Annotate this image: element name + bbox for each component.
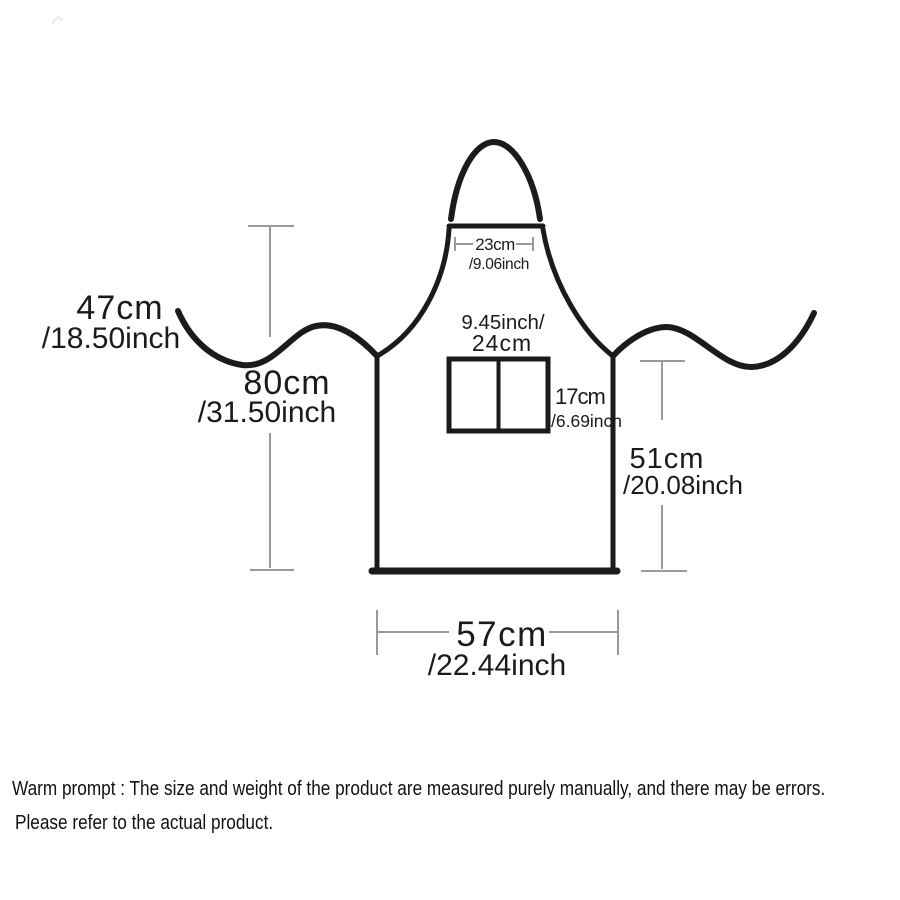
total-height-inch-label: /31.50inch <box>198 396 336 429</box>
pocket-height-inch-label: /6.69inch <box>551 411 622 431</box>
waist-strap-right <box>613 313 814 367</box>
neck-strap-arch <box>451 142 540 219</box>
warm-prompt-line2: Please refer to the actual product. <box>15 812 273 835</box>
neck-width-inch-label: /9.06inch <box>469 256 529 273</box>
apron-diagram-svg: 47cm /18.50inch 80cm /31.50inch 23cm /9.… <box>0 0 900 760</box>
bottom-width-inch-label: /22.44inch <box>428 649 566 682</box>
measurement-labels: 47cm /18.50inch 80cm /31.50inch 23cm /9.… <box>42 235 743 682</box>
apron-outline <box>178 142 814 571</box>
warm-prompt-line1: Warm prompt : The size and weight of the… <box>12 778 825 801</box>
dimension-lines <box>248 226 687 655</box>
strap-length-inch-label: /18.50inch <box>42 322 180 355</box>
faint-smudge-mark <box>53 17 62 24</box>
bib-right-edge <box>543 229 613 356</box>
bib-left-edge <box>377 229 449 356</box>
pocket-height-cm-label: 17cm <box>555 384 605 409</box>
apron-size-chart: 47cm /18.50inch 80cm /31.50inch 23cm /9.… <box>0 0 900 900</box>
neck-width-cm-label: 23cm <box>475 235 515 254</box>
body-height-inch-label: /20.08inch <box>623 470 743 500</box>
pocket-width-cm-label: 24cm <box>472 330 532 356</box>
waist-strap-left <box>178 311 377 365</box>
